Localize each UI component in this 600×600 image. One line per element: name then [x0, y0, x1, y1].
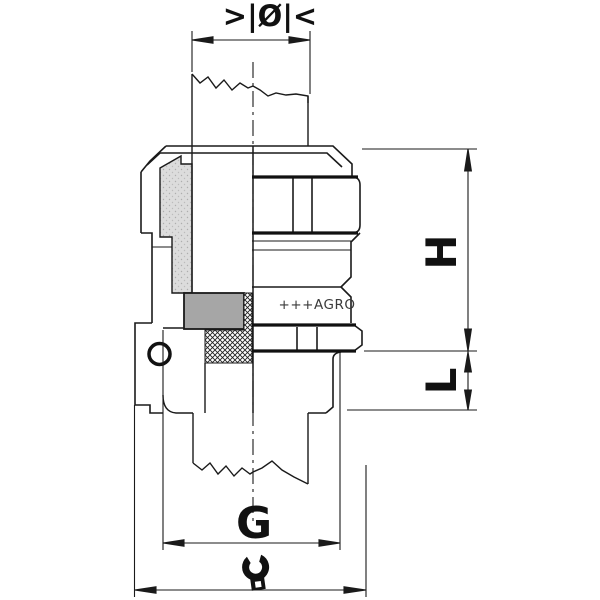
height-label: H — [417, 234, 466, 269]
thread-size-label: G — [236, 498, 272, 549]
clamp-insert — [184, 293, 244, 329]
technical-drawing-canvas: +++AGRO >|Ø|< H L G — [0, 0, 600, 600]
brand-marking: +++AGRO — [279, 297, 356, 313]
cable-diameter-symbol: >|Ø|< — [223, 0, 317, 33]
o-ring — [149, 344, 170, 365]
cable-gland-drawing: +++AGRO >|Ø|< H L G — [0, 0, 600, 600]
thread-length-label: L — [417, 368, 466, 395]
